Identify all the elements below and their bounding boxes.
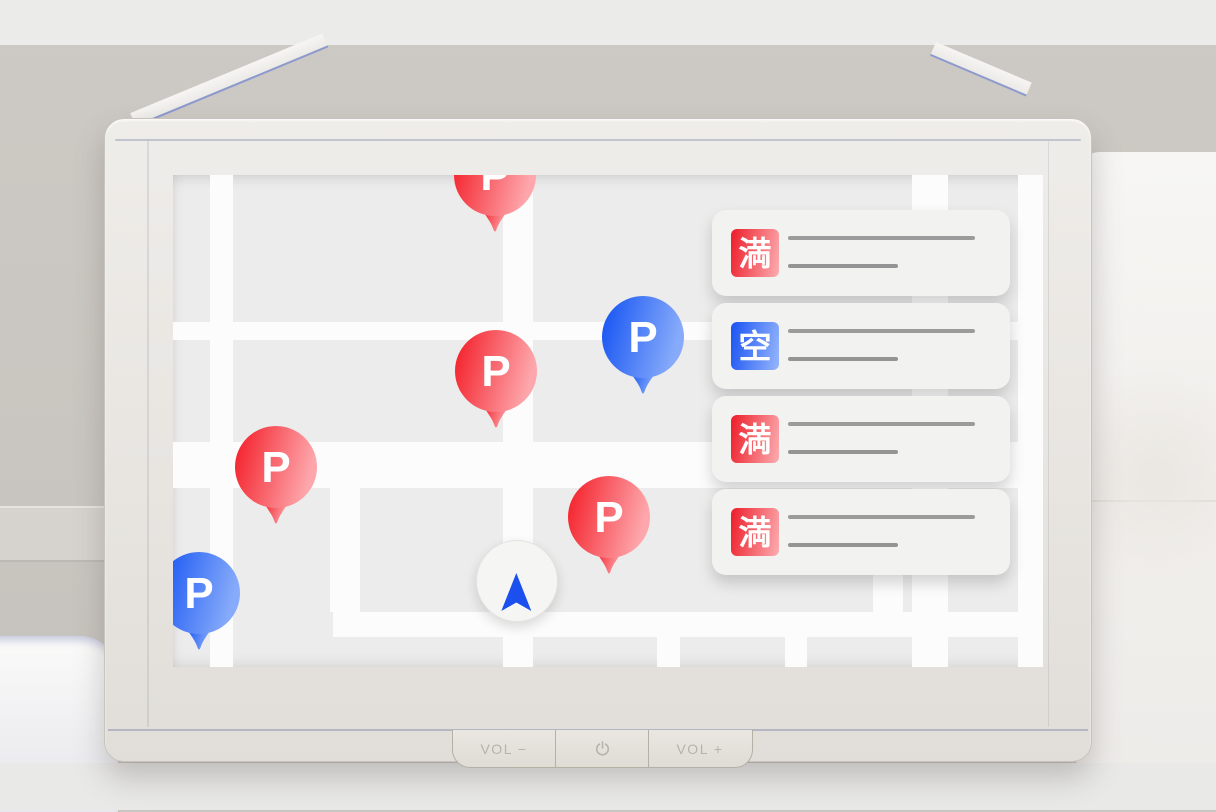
navigation-arrow-icon [499, 573, 533, 613]
parking-pin-vacant[interactable]: P [602, 296, 684, 396]
windshield-band [0, 0, 1216, 45]
parking-pin-full[interactable]: P [235, 426, 317, 526]
parking-pin-letter: P [184, 569, 213, 618]
parking-pin-letter: P [628, 313, 657, 362]
power-icon [594, 740, 611, 757]
status-badge: 満 [731, 229, 779, 277]
parking-list-card-full[interactable]: 満 [712, 396, 1010, 482]
placeholder-line-1 [788, 422, 975, 426]
placeholder-line-2 [788, 264, 898, 268]
parking-pin-graphic: P [455, 330, 537, 430]
parking-pin-vacant[interactable]: P [173, 552, 240, 652]
parking-list-card-full[interactable]: 満 [712, 210, 1010, 296]
bezel-seam-right [1048, 141, 1050, 727]
parking-pin-full[interactable]: P [455, 330, 537, 430]
placeholder-line-1 [788, 236, 975, 240]
road [330, 488, 360, 612]
button-label: VOL + [676, 741, 723, 757]
road [333, 612, 1043, 637]
parking-pin-letter: P [594, 493, 623, 542]
status-badge: 満 [731, 415, 779, 463]
button-label: VOL − [480, 741, 527, 757]
current-location-marker [476, 540, 558, 622]
placeholder-line-2 [788, 357, 898, 361]
parking-pin-letter: P [481, 347, 510, 396]
road [1018, 175, 1043, 667]
road [785, 637, 807, 667]
dashboard-seam [1077, 500, 1216, 502]
map-screen[interactable]: P P P P P P 満 [173, 175, 1043, 667]
placeholder-line-1 [788, 329, 975, 333]
parking-pin-graphic: P [454, 175, 536, 234]
power-button[interactable] [555, 730, 649, 767]
parking-pin-full[interactable]: P [568, 476, 650, 576]
road [657, 637, 680, 667]
bezel-seam-left [147, 141, 149, 727]
console-band [0, 763, 1216, 810]
parking-pin-graphic: P [568, 476, 650, 576]
parking-pin-graphic: P [235, 426, 317, 526]
status-badge: 空 [731, 322, 779, 370]
parking-pin-graphic: P [602, 296, 684, 396]
dashboard-panel-right [1076, 152, 1216, 764]
parking-pin-full[interactable]: P [454, 175, 536, 234]
status-badge: 満 [731, 508, 779, 556]
placeholder-line-2 [788, 450, 898, 454]
road [873, 575, 903, 612]
parking-list-card-vacant[interactable]: 空 [712, 303, 1010, 389]
bezel-seam-top [115, 139, 1081, 141]
vol-up-button[interactable]: VOL + [649, 730, 751, 767]
parking-list-panel: 満 空 満 満 [712, 210, 1010, 575]
hardware-button-bar: VOL − VOL + [452, 730, 753, 768]
placeholder-line-1 [788, 515, 975, 519]
vol-down-button[interactable]: VOL − [453, 730, 555, 767]
placeholder-line-2 [788, 543, 898, 547]
parking-pin-graphic: P [173, 552, 240, 652]
parking-pin-letter: P [480, 175, 509, 200]
parking-list-card-full[interactable]: 満 [712, 489, 1010, 575]
parking-pin-letter: P [261, 443, 290, 492]
car-dashboard-scene: { "device": { "hardware_buttons": [ { "i… [0, 0, 1216, 810]
